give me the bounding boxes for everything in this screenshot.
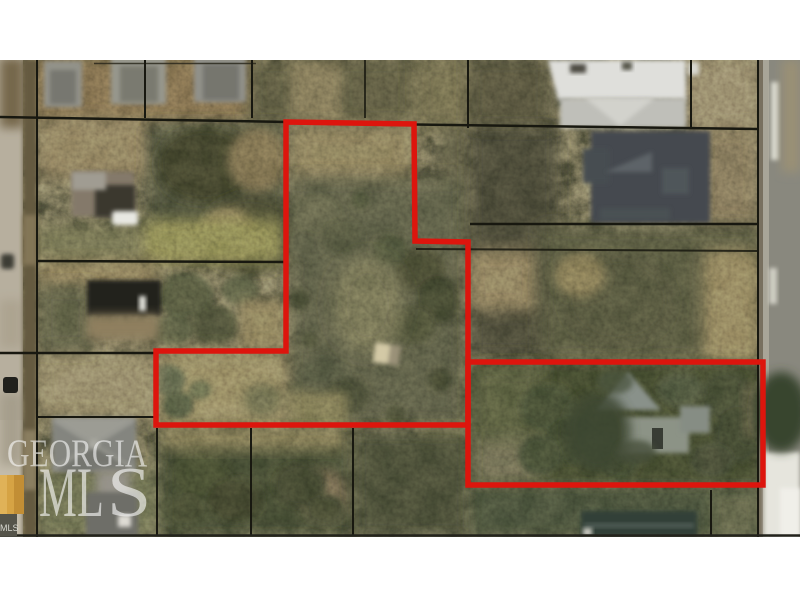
svg-text:S: S — [107, 454, 151, 532]
svg-text:L: L — [77, 452, 104, 531]
svg-text:MLS: MLS — [0, 523, 19, 533]
svg-text:M: M — [39, 453, 77, 532]
